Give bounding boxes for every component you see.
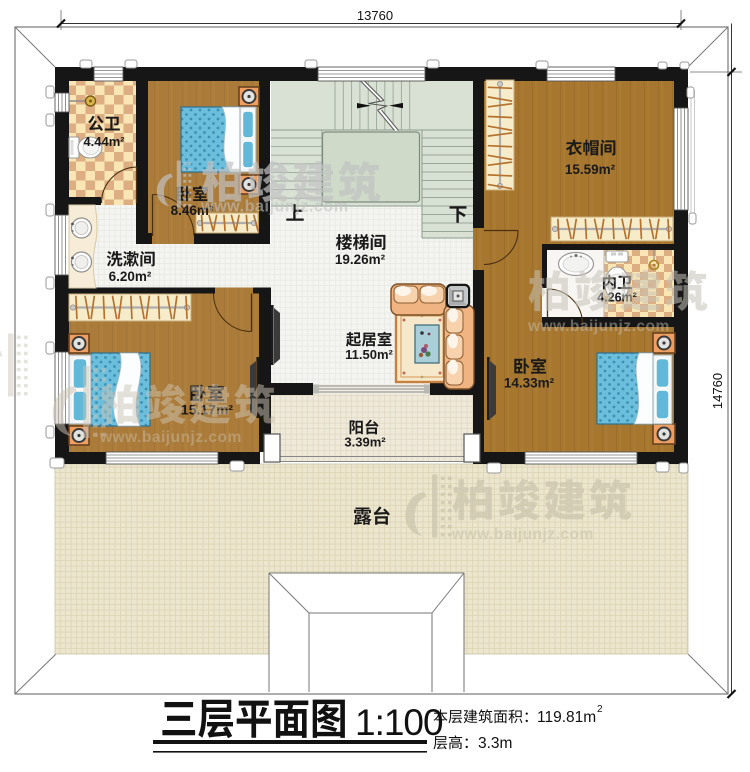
svg-text:11.50m²: 11.50m² xyxy=(345,347,393,362)
svg-text:15.59m²: 15.59m² xyxy=(565,162,616,177)
svg-text:14.33m²: 14.33m² xyxy=(504,376,555,391)
svg-text:19.26m²: 19.26m² xyxy=(335,252,386,267)
svg-text:www.baijunjz.com: www.baijunjz.com xyxy=(99,429,242,446)
svg-text:15.17m²: 15.17m² xyxy=(181,402,233,418)
svg-text:3.39m²: 3.39m² xyxy=(344,435,386,450)
svg-text:2: 2 xyxy=(597,704,603,715)
svg-text:www.baijunjz.com: www.baijunjz.com xyxy=(451,526,594,543)
svg-text:1:100: 1:100 xyxy=(355,702,443,743)
svg-text:www.baijunjz.com: www.baijunjz.com xyxy=(527,318,670,335)
svg-text:13760: 13760 xyxy=(357,8,393,23)
svg-text:4.44m²: 4.44m² xyxy=(83,134,125,149)
svg-text:119.81m: 119.81m xyxy=(537,709,596,726)
svg-text:3.3m: 3.3m xyxy=(478,735,512,752)
svg-text:14760: 14760 xyxy=(710,373,725,409)
svg-text:6.20m²: 6.20m² xyxy=(109,269,152,284)
svg-text:www.baijunjz.com: www.baijunjz.com xyxy=(200,198,349,216)
